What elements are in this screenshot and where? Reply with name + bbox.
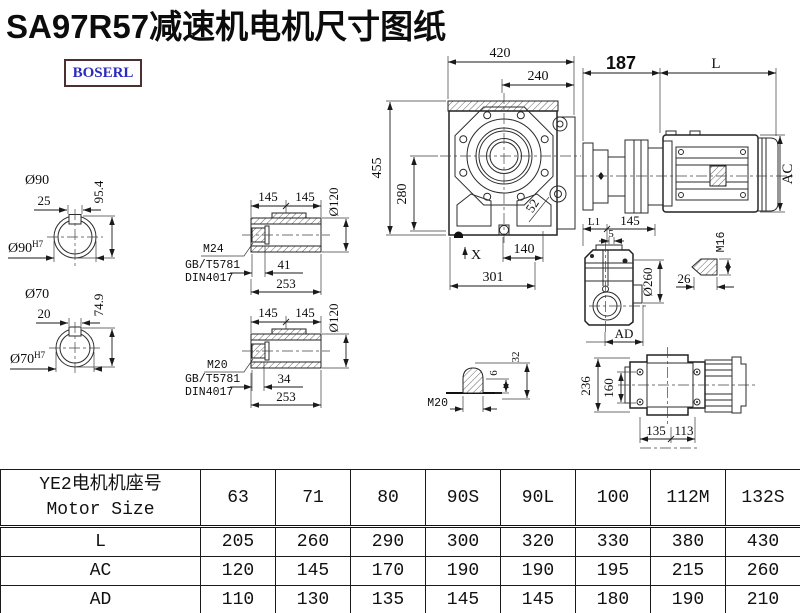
dim-160: 160 <box>601 378 616 398</box>
size-100: 100 <box>576 470 651 527</box>
table-row-l: L 205 260 290 300 320 330 380 430 <box>1 527 800 557</box>
cell-l-90s: 300 <box>426 527 501 557</box>
hollow-shaft-m24: 145 145 Ø120 M24 GB/T5781 DIN4017 41 253 <box>185 188 349 295</box>
hollow-shaft-m20: 145 145 Ø120 M20 GB/T5781 DIN4017 34 253 <box>185 304 349 408</box>
size-90s: 90S <box>426 470 501 527</box>
oil-plug <box>454 232 463 238</box>
label-m20-shaft: M20 <box>207 359 228 372</box>
label-din4017-a: DIN4017 <box>185 272 233 285</box>
label-m20-bolt: M20 <box>427 397 448 410</box>
label-m16: M16 <box>715 232 728 253</box>
dim-34: 34 <box>278 371 292 386</box>
front-view: X 420 240 455 280 52 140 301 <box>370 46 581 290</box>
cell-ac-112m: 215 <box>651 557 726 586</box>
dim-140: 140 <box>514 242 535 257</box>
dim-240: 240 <box>528 69 549 84</box>
dim-dia-70: Ø70 <box>25 287 49 302</box>
dim-motor-height-ac: AC <box>780 164 796 185</box>
dim-6: 6 <box>488 370 500 376</box>
cell-l-132s: 430 <box>726 527 800 557</box>
dim-236: 236 <box>578 376 593 396</box>
dim-motor-length-l: L <box>711 56 720 72</box>
dim-ad: AD <box>615 326 634 341</box>
cell-ad-63: 110 <box>201 586 276 613</box>
dim-95-4: 95.4 <box>91 180 106 203</box>
size-90l: 90L <box>501 470 576 527</box>
cell-l-100: 330 <box>576 527 651 557</box>
rear-view: 236 160 135 113 <box>578 347 758 448</box>
header-motor-size: YE2电机机座号 Motor Size <box>1 470 201 527</box>
cell-l-90l: 320 <box>501 527 576 557</box>
cell-ad-90l: 145 <box>501 586 576 613</box>
cell-ac-90l: 190 <box>501 557 576 586</box>
label-din4017-b: DIN4017 <box>185 386 233 399</box>
cell-ac-63: 120 <box>201 557 276 586</box>
size-112m: 112M <box>651 470 726 527</box>
size-80: 80 <box>351 470 426 527</box>
label-gb-t5781-a: GB/T5781 <box>185 259 240 272</box>
cell-ac-90s: 190 <box>426 557 501 586</box>
cell-l-80: 290 <box>351 527 426 557</box>
dim-301: 301 <box>483 270 504 285</box>
shaft-section-70: Ø70 20 74.9 Ø70H7 <box>10 287 115 375</box>
dim-key-25: 25 <box>38 193 51 208</box>
size-63: 63 <box>201 470 276 527</box>
cell-ad-71: 130 <box>276 586 351 613</box>
header-motor-size-cn: YE2电机机座号 <box>1 473 200 497</box>
dim-l1: L1 <box>588 216 600 228</box>
size-132s: 132S <box>726 470 800 527</box>
dim-52: 52 <box>522 196 542 215</box>
cell-l-71: 260 <box>276 527 351 557</box>
cell-l-112m: 380 <box>651 527 726 557</box>
bolt-m20: M20 6 32 <box>427 352 530 413</box>
dim-dia-120-a: Ø120 <box>326 188 341 217</box>
dim-145-side: 145 <box>620 213 640 228</box>
motor-side-view: 187 L AC <box>576 53 796 213</box>
label-gb-t5781-b: GB/T5781 <box>185 373 240 386</box>
dimension-drawing-page: SA97R57减速机电机尺寸图纸 BOSERL Ø90 <box>0 0 800 613</box>
table-header-row: YE2电机机座号 Motor Size 63 71 80 90S 90L 100… <box>1 470 800 527</box>
dim-145-a2: 145 <box>295 189 315 204</box>
dim-455: 455 <box>370 158 385 179</box>
label-m24: M24 <box>203 243 224 256</box>
cell-ad-80: 135 <box>351 586 426 613</box>
dim-32: 32 <box>510 352 522 363</box>
dim-dia-90: Ø90 <box>25 173 49 188</box>
dim-113: 113 <box>674 423 693 438</box>
dim-bore-70h7: Ø70H7 <box>10 350 46 367</box>
dim-x-mark: X <box>471 248 481 263</box>
cell-ac-132s: 260 <box>726 557 800 586</box>
dim-280: 280 <box>395 184 410 205</box>
size-71: 71 <box>276 470 351 527</box>
cell-ad-112m: 190 <box>651 586 726 613</box>
dim-key-20: 20 <box>38 306 51 321</box>
shaft-section-90: Ø90 25 95.4 Ø90H7 <box>8 173 115 266</box>
row-label-l: L <box>1 527 201 557</box>
dim-420: 420 <box>490 46 511 61</box>
dim-187: 187 <box>606 53 636 73</box>
dim-145-b2: 145 <box>295 305 315 320</box>
dim-dia-260: Ø260 <box>640 268 655 297</box>
cell-ad-90s: 145 <box>426 586 501 613</box>
table-row-ac: AC 120 145 170 190 190 195 215 260 <box>1 557 800 586</box>
cell-ad-132s: 210 <box>726 586 800 613</box>
row-label-ac: AC <box>1 557 201 586</box>
gearbox-side-view: L1 145 5 Ø260 AD <box>583 213 664 346</box>
technical-drawing-canvas: Ø90 25 95.4 Ø90H7 Ø70 20 <box>0 0 800 462</box>
dim-dia-120-b: Ø120 <box>326 304 341 333</box>
cell-ac-80: 170 <box>351 557 426 586</box>
dim-74-9: 74.9 <box>91 294 106 317</box>
cell-ad-100: 180 <box>576 586 651 613</box>
dim-bore-90h7: Ø90H7 <box>8 239 44 256</box>
cell-l-63: 205 <box>201 527 276 557</box>
cell-ac-71: 145 <box>276 557 351 586</box>
table-row-ad: AD 110 130 135 145 145 180 190 210 <box>1 586 800 613</box>
dim-5: 5 <box>608 228 614 240</box>
dim-135: 135 <box>646 423 666 438</box>
cell-ac-100: 195 <box>576 557 651 586</box>
dim-253-a: 253 <box>276 276 296 291</box>
header-motor-size-en: Motor Size <box>1 498 200 522</box>
dim-41: 41 <box>278 257 291 272</box>
motor-spec-table: YE2电机机座号 Motor Size 63 71 80 90S 90L 100… <box>0 469 800 613</box>
bolt-m16: M16 26 <box>676 232 734 290</box>
dim-26: 26 <box>678 271 692 286</box>
dim-253-b: 253 <box>276 389 296 404</box>
dim-145-a1: 145 <box>258 189 278 204</box>
dim-145-b1: 145 <box>258 305 278 320</box>
row-label-ad: AD <box>1 586 201 613</box>
